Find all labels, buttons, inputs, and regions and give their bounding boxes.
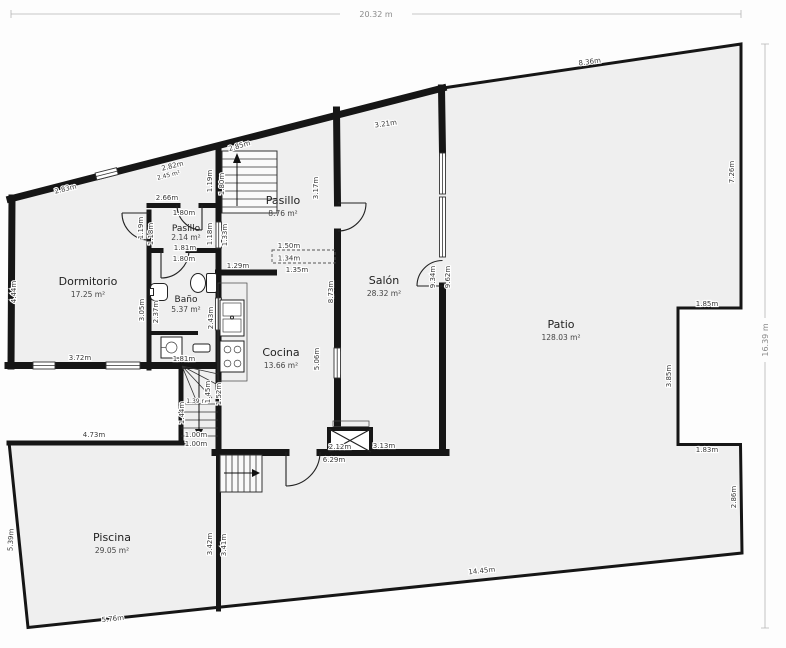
floorplan-page: 20.32 m 16.39 m — [0, 0, 786, 648]
dim-salon-bottom-out: 6.29m — [323, 456, 346, 464]
dim-salon-right-in: 9.34m — [429, 266, 437, 289]
dim-pool-top: 4.73m — [83, 431, 106, 439]
dim-storage-bottom: 2.66m — [156, 194, 179, 202]
window-salon-patio-2 — [440, 197, 446, 257]
dim-winder-right: 1.45m — [204, 381, 212, 404]
room-name-salon: Salón — [369, 274, 400, 287]
dim-dorm-bottom: 3.72m — [69, 354, 92, 362]
dim-salon-right-out: 9.62m — [444, 266, 452, 289]
room-area-piscina: 29.05 m² — [95, 546, 129, 555]
dim-pasillo1-top: 1.80m — [173, 209, 196, 217]
dim-winder-exit-a: 1.00m — [185, 431, 208, 439]
room-area-pasillo-small: 2.14 m² — [171, 233, 200, 242]
dim-dorm-left: 4.44m — [10, 281, 18, 304]
stove-icon — [220, 341, 244, 372]
dim-bano-left: 2.37m — [152, 301, 160, 324]
room-name-cocina: Cocina — [262, 346, 299, 359]
dim-stairs1-a: 1.19m — [206, 170, 214, 193]
dim-winder-left: 1.44m — [178, 402, 186, 425]
radiator-icon — [193, 344, 210, 352]
dim-winder-exit-b: 1.00m — [185, 440, 208, 448]
dim-notch-left: 3.85m — [665, 365, 673, 388]
dim-stairs1-b: 1.80m — [218, 173, 226, 196]
window-dormitorio-bottom-2 — [106, 362, 140, 369]
overall-width-label: 20.32 m — [359, 10, 392, 19]
room-area-patio: 128.03 m² — [542, 333, 581, 342]
window-cocina-right — [334, 348, 341, 378]
room-area-dormitorio: 17.25 m² — [71, 290, 105, 299]
dim-divider-left: 3.42m — [206, 533, 214, 556]
room-area-cocina: 13.66 m² — [264, 361, 298, 370]
dim-notch-bottom: 1.83m — [696, 446, 719, 454]
room-area-salon: 28.32 m² — [367, 289, 401, 298]
dim-notch-top: 1.85m — [696, 300, 719, 308]
room-name-patio: Patio — [548, 318, 575, 331]
window-dormitorio-bottom-1 — [33, 362, 55, 369]
toilet-icon — [191, 274, 217, 293]
dim-pasillo1-r2: 1.33m — [221, 224, 229, 247]
room-name-pasillo-large: Pasillo — [266, 194, 301, 207]
window-salon-patio-1 — [440, 153, 446, 194]
dim-cocina-pass-a: 1.50m — [278, 242, 301, 250]
dim-bano-top: 1.80m — [173, 255, 196, 263]
room-area-pasillo-large: 8.76 m² — [268, 209, 297, 218]
dim-pasillo1-l1: 1.19m — [137, 217, 145, 240]
room-name-dormitorio: Dormitorio — [59, 275, 118, 288]
dim-cocina-top: 1.29m — [227, 262, 250, 270]
dim-pasillo1-bottom: 1.81m — [174, 244, 197, 252]
dim-salon-bottom: 3.13m — [373, 442, 396, 450]
dim-cocina-left: 1.52m — [215, 383, 223, 406]
dim-dorm-right: 3.05m — [138, 299, 146, 322]
dim-entrance-door: 2.12m — [329, 443, 352, 451]
overall-height-label: 16.39 m — [761, 323, 770, 356]
dim-cocina-right: 5.06m — [313, 348, 321, 371]
dim-patio-right: 7.26m — [728, 161, 736, 184]
dim-pool-bottom: 5.76m — [101, 614, 124, 624]
dim-pool-left: 5.39m — [6, 528, 15, 551]
dim-bano-bottom: 1.81m — [173, 355, 196, 363]
room-area-bano: 5.37 m² — [171, 305, 200, 314]
room-name-piscina: Piscina — [93, 531, 131, 544]
dim-divider-right: 3.41m — [220, 534, 228, 557]
dim-bano-right: 2.43m — [207, 307, 215, 330]
dim-pasillo2-right: 3.17m — [312, 177, 320, 200]
room-name-bano: Baño — [175, 295, 198, 305]
kitchen-sink-icon — [220, 300, 244, 336]
dim-pasillo1-r1: 1.18m — [206, 223, 214, 246]
dim-salon-left: 8.73m — [327, 281, 335, 304]
dim-cocina-pass-b: 1.34m — [278, 255, 301, 263]
dim-patio-right2: 2.86m — [730, 486, 738, 509]
dim-pasillo1-l2: 1.18m — [147, 223, 155, 246]
bath-sink-icon — [150, 284, 168, 301]
dim-cocina-pass-c: 1.35m — [286, 266, 309, 274]
stairs-entrance — [220, 455, 262, 492]
floorplan-canvas: 20.32 m 16.39 m — [0, 0, 786, 648]
